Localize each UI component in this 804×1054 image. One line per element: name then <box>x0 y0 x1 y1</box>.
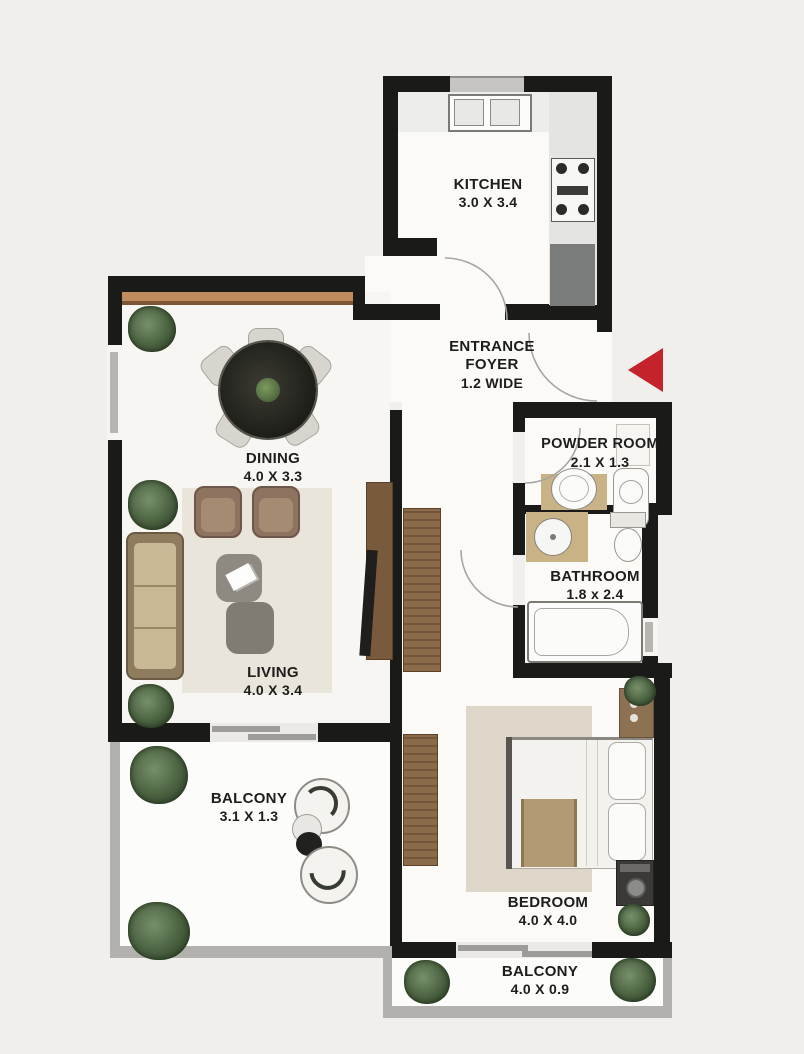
room-label-balcony-bedroom: BALCONY 4.0 X 0.9 <box>460 963 620 998</box>
room-dims: 3.0 X 3.4 <box>408 194 568 211</box>
room-dims: 3.1 X 1.3 <box>169 808 329 825</box>
room-dims: 4.0 X 0.9 <box>460 981 620 998</box>
room-dims: 4.0 X 3.3 <box>193 468 353 485</box>
room-name: FOYER <box>465 356 518 373</box>
room-name: BEDROOM <box>508 894 588 911</box>
room-label-kitchen: KITCHEN 3.0 X 3.4 <box>408 176 568 211</box>
room-name: BALCONY <box>211 790 287 807</box>
room-label-entrance-foyer: ENTRANCE FOYER 1.2 WIDE <box>412 338 572 392</box>
room-label-dining: DINING 4.0 X 3.3 <box>193 450 353 485</box>
room-label-balcony-living: BALCONY 3.1 X 1.3 <box>169 790 329 825</box>
room-name: LIVING <box>247 664 299 681</box>
room-label-living: LIVING 4.0 X 3.4 <box>193 664 353 699</box>
room-name: DINING <box>246 450 300 467</box>
floor-plan: KITCHEN 3.0 X 3.4 ENTRANCE FOYER 1.2 WID… <box>0 0 804 1054</box>
door-swing-arcs <box>0 0 804 1054</box>
room-dims: 2.1 X 1.3 <box>520 454 680 471</box>
room-name: KITCHEN <box>454 176 523 193</box>
room-dims: 1.8 x 2.4 <box>515 586 675 603</box>
room-name: POWDER ROOM <box>541 436 659 452</box>
room-dims: 4.0 X 4.0 <box>468 912 628 929</box>
entrance-arrow-icon <box>628 348 663 392</box>
room-name: ENTRANCE <box>449 338 535 355</box>
room-dims: 4.0 X 3.4 <box>193 682 353 699</box>
room-label-powder-room: POWDER ROOM 2.1 X 1.3 <box>520 436 680 471</box>
room-label-bedroom: BEDROOM 4.0 X 4.0 <box>468 894 628 929</box>
room-name: BALCONY <box>502 963 578 980</box>
room-label-bathroom: BATHROOM 1.8 x 2.4 <box>515 568 675 603</box>
room-dims: 1.2 WIDE <box>412 375 572 392</box>
room-name: BATHROOM <box>550 568 640 585</box>
